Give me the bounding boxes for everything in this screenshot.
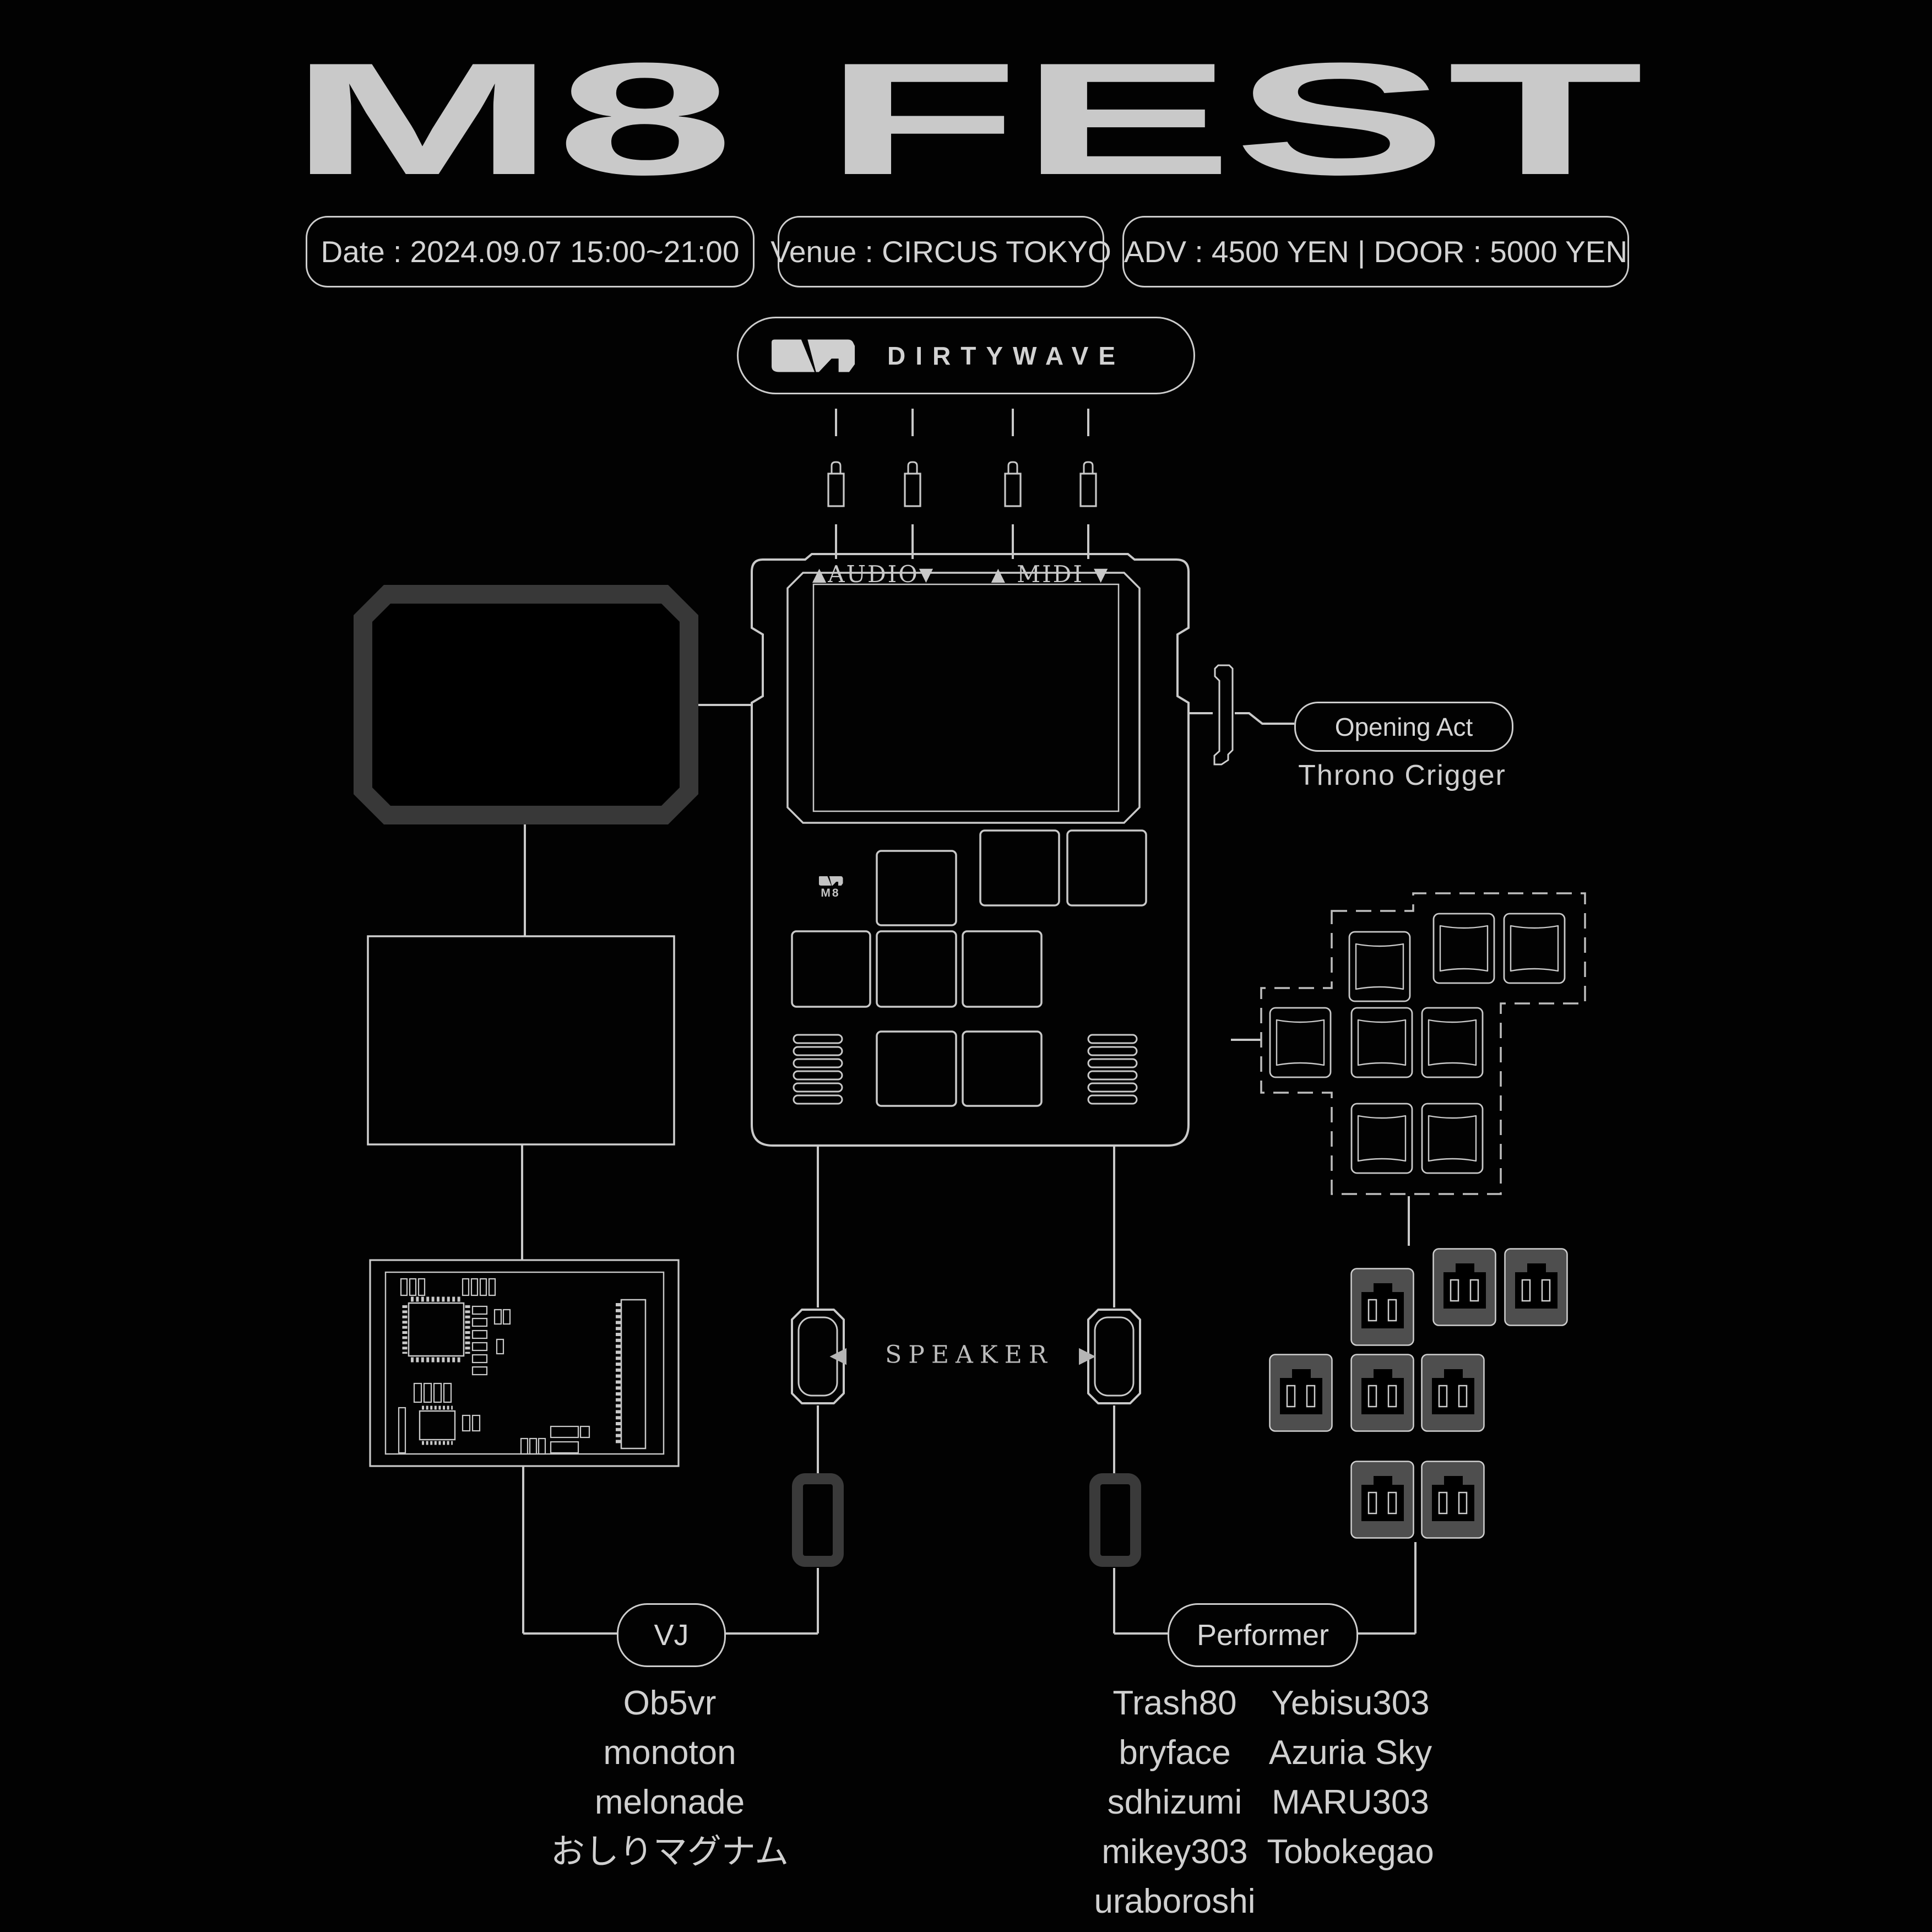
- performer-name: MARU303: [1267, 1778, 1434, 1827]
- m8-option-button: [980, 831, 1059, 905]
- dirtywave-badge: DIRTYWAVE: [737, 317, 1195, 394]
- up-arrow-icon: ▲: [991, 563, 1007, 585]
- m8-play-button: [963, 1032, 1041, 1106]
- m8-speaker-grilles: [794, 1035, 1137, 1104]
- price-badge: ADV : 4500 YEN | DOOR : 5000 YEN: [1122, 216, 1629, 287]
- vj-name-list: Ob5vr monoton melonade おしりマグナム: [551, 1679, 789, 1877]
- monitor-display: [354, 585, 698, 824]
- performer-name: Yebisu303: [1267, 1679, 1434, 1728]
- performer-column-2: Yebisu303 Azuria Sky MARU303 Tobokegao: [1267, 1679, 1434, 1877]
- opening-act-artist: Throno Crigger: [1298, 759, 1506, 792]
- performer-column-1: Trash80 bryface sdhizumi mikey303 urabor…: [1094, 1679, 1256, 1926]
- price-text: ADV : 4500 YEN | DOOR : 5000 YEN: [1124, 234, 1627, 269]
- interface-box: [368, 936, 674, 1144]
- m8-screen: [813, 584, 1119, 811]
- pad-left: [797, 1479, 838, 1561]
- m8-device: [752, 554, 1188, 1146]
- opening-act-badge: Opening Act: [1294, 702, 1513, 752]
- speaker-label-row: ◀ SPEAKER ▶: [829, 1341, 1102, 1369]
- performer-name: Azuria Sky: [1267, 1728, 1434, 1778]
- right-triangle-icon: ▶: [1079, 1342, 1103, 1367]
- performer-name: bryface: [1094, 1728, 1256, 1778]
- m8-shift-button: [877, 1032, 956, 1106]
- vj-label: VJ: [654, 1618, 688, 1652]
- vj-name: おしりマグナム: [551, 1827, 789, 1877]
- performer-badge: Performer: [1168, 1603, 1358, 1667]
- date-text: Date : 2024.09.07 15:00~21:00: [321, 234, 740, 269]
- audio-port-label: ▲ AUDIO ▼: [812, 557, 935, 590]
- vj-badge: VJ: [617, 1603, 726, 1667]
- keycap-cluster: [1261, 893, 1585, 1194]
- wiring-diagram: [0, 0, 1932, 1932]
- vj-name: melonade: [551, 1778, 789, 1827]
- cable-plug-icons: [828, 462, 1096, 506]
- m8-left-button: [792, 931, 870, 1007]
- audio-label: AUDIO: [828, 561, 919, 588]
- vj-name: monoton: [551, 1728, 789, 1778]
- midi-port-label: ▲ MIDI ▼: [991, 557, 1110, 590]
- speaker-label: SPEAKER: [885, 1341, 1054, 1369]
- performer-name: mikey303: [1094, 1827, 1256, 1877]
- page-title: M8 FEST: [289, 30, 1643, 192]
- dirtywave-label: DIRTYWAVE: [887, 341, 1125, 371]
- venue-text: Venue : CIRCUS TOKYO: [770, 234, 1111, 269]
- up-arrow-icon: ▲: [812, 563, 828, 585]
- m8-screen-bezel: [788, 573, 1139, 823]
- performer-name: uraboroshi: [1094, 1877, 1256, 1926]
- m8-logo-text: M8: [821, 887, 840, 900]
- title-lockup: M8 FEST: [250, 21, 1682, 192]
- mount-bracket: [1214, 665, 1233, 764]
- keycap-dashed-outline: [1261, 893, 1585, 1194]
- circuit-board: [370, 1260, 679, 1466]
- date-badge: Date : 2024.09.07 15:00~21:00: [306, 216, 755, 287]
- down-arrow-icon: ▼: [919, 563, 935, 585]
- m8-edit-button: [1067, 831, 1146, 905]
- m8-up-button: [877, 851, 956, 925]
- vj-name: Ob5vr: [551, 1679, 789, 1728]
- midi-label: MIDI: [1017, 561, 1084, 588]
- opening-act-label: Opening Act: [1335, 712, 1473, 742]
- dirtywave-logo-icon: [765, 338, 859, 373]
- m8-logo-icon: [817, 876, 844, 886]
- performer-name: sdhizumi: [1094, 1778, 1256, 1827]
- m8-down-button: [877, 931, 956, 1007]
- m8-device-logo: M8: [814, 876, 847, 900]
- venue-badge: Venue : CIRCUS TOKYO: [778, 216, 1104, 287]
- down-arrow-icon: ▼: [1094, 563, 1109, 585]
- performer-label: Performer: [1197, 1618, 1329, 1652]
- m8-buttons: [792, 831, 1146, 1106]
- performer-name: Tobokegao: [1267, 1827, 1434, 1877]
- left-triangle-icon: ◀: [829, 1342, 853, 1367]
- m8-right-button: [963, 931, 1041, 1007]
- event-poster: M8 FEST Date : 2024.09.07 15:00~21:00 Ve…: [0, 0, 1932, 1932]
- performer-name: Trash80: [1094, 1679, 1256, 1728]
- pad-right: [1095, 1479, 1136, 1561]
- outlet-cluster: [1270, 1249, 1567, 1538]
